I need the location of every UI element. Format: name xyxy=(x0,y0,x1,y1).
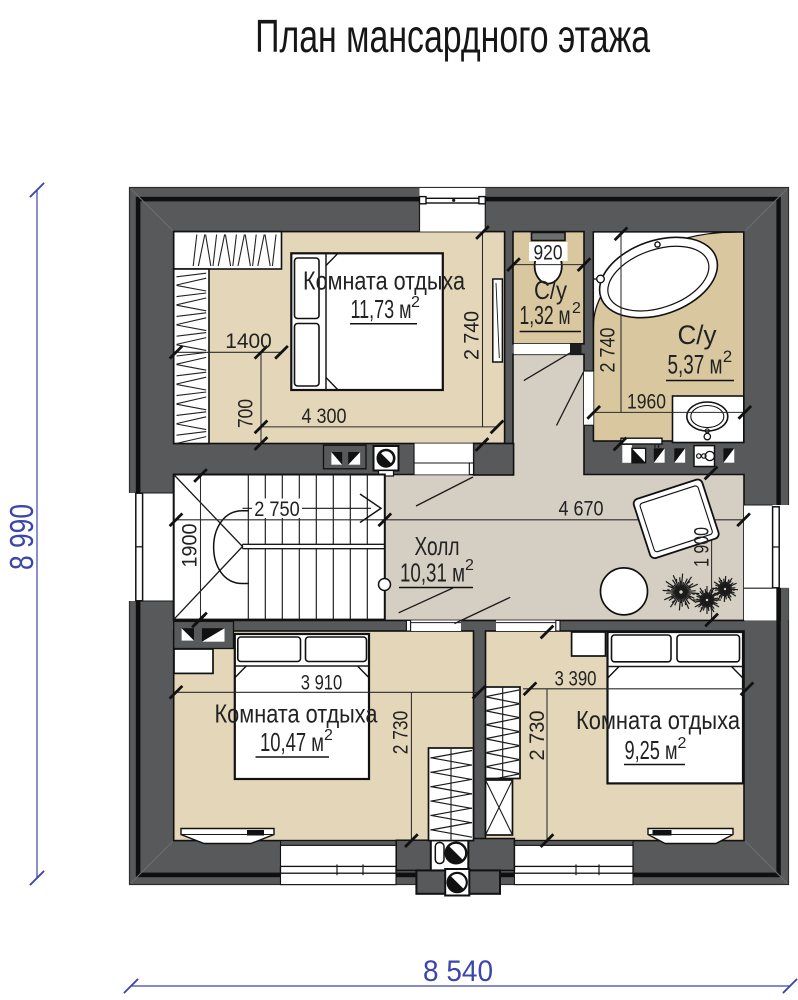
svg-text:2 750: 2 750 xyxy=(254,497,300,521)
svg-text:2 740: 2 740 xyxy=(596,327,620,372)
svg-text:План мансардного этажа: План мансардного этажа xyxy=(255,10,650,62)
svg-text:2 730: 2 730 xyxy=(389,711,413,755)
svg-text:1400: 1400 xyxy=(225,329,272,353)
svg-text:1 900: 1 900 xyxy=(690,527,714,567)
svg-text:920: 920 xyxy=(534,241,563,265)
svg-text:5,37 м: 5,37 м xyxy=(668,350,723,380)
svg-text:9,25 м: 9,25 м xyxy=(625,735,678,765)
svg-text:700: 700 xyxy=(234,399,258,428)
svg-text:Комната отдыха: Комната отдыха xyxy=(215,699,378,729)
svg-text:1,32 м: 1,32 м xyxy=(520,300,571,330)
svg-text:4 300: 4 300 xyxy=(302,404,347,428)
svg-text:10,31 м: 10,31 м xyxy=(400,558,465,588)
svg-text:2: 2 xyxy=(465,557,474,574)
svg-text:С/у: С/у xyxy=(678,320,717,350)
svg-text:2 730: 2 730 xyxy=(525,710,549,760)
svg-text:11,73 м: 11,73 м xyxy=(351,294,412,324)
svg-text:1960: 1960 xyxy=(627,390,666,414)
svg-text:Комната отдыха: Комната отдыха xyxy=(576,705,740,735)
svg-text:Холл: Холл xyxy=(415,531,460,561)
svg-text:2: 2 xyxy=(723,347,732,366)
svg-text:2: 2 xyxy=(678,735,687,752)
svg-text:3 390: 3 390 xyxy=(555,667,597,691)
svg-text:2: 2 xyxy=(411,294,420,311)
svg-text:Комната отдыха: Комната отдыха xyxy=(303,266,465,296)
svg-text:8 990: 8 990 xyxy=(3,504,40,570)
svg-text:2: 2 xyxy=(572,300,581,317)
svg-text:2 740: 2 740 xyxy=(460,311,484,360)
svg-text:2: 2 xyxy=(324,727,333,744)
svg-text:10,47 м: 10,47 м xyxy=(260,727,324,757)
svg-text:8 540: 8 540 xyxy=(423,955,493,988)
svg-text:1900: 1900 xyxy=(178,523,202,567)
svg-text:4 670: 4 670 xyxy=(559,497,604,521)
svg-text:3 910: 3 910 xyxy=(301,671,343,695)
